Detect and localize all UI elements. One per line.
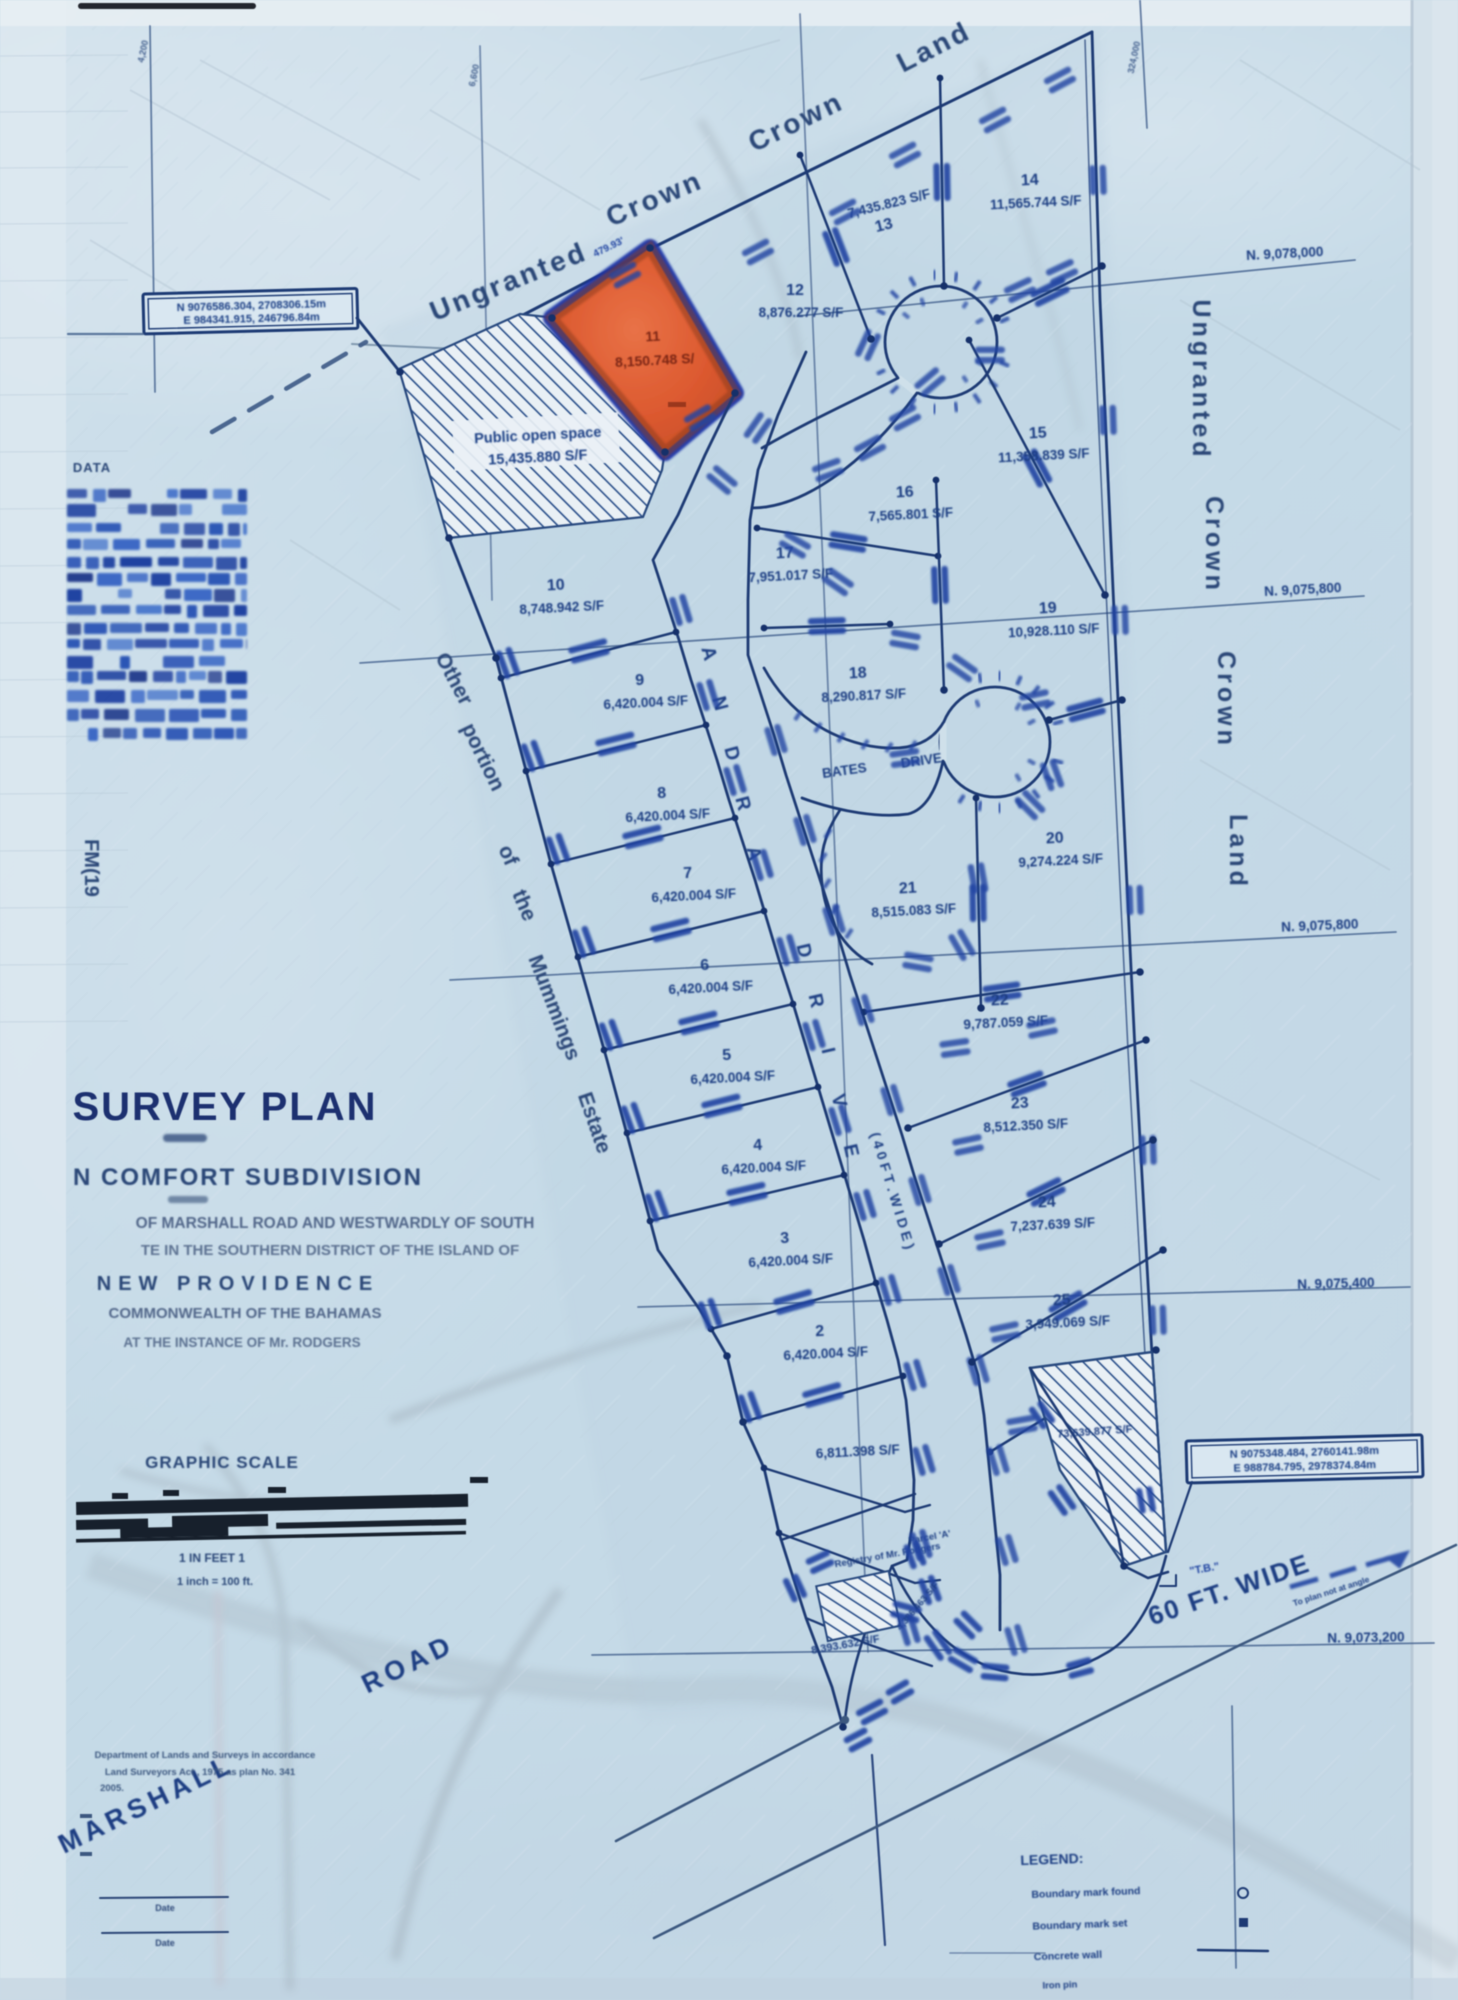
svg-text:DATA: DATA [73,460,111,475]
svg-text:6: 6 [700,957,710,974]
svg-text:5: 5 [722,1047,732,1064]
svg-text:NEW PROVIDENCE: NEW PROVIDENCE [97,1273,379,1295]
svg-text:3: 3 [780,1230,790,1247]
svg-text:COMMONWEALTH OF THE BAHAMAS: COMMONWEALTH OF THE BAHAMAS [108,1305,381,1322]
svg-text:25: 25 [1052,1292,1071,1310]
svg-text:21: 21 [898,880,917,898]
svg-text:Crown: Crown [1212,651,1240,749]
svg-text:FM(19: FM(19 [80,839,102,897]
svg-text:GRAPHIC SCALE: GRAPHIC SCALE [145,1453,299,1472]
svg-text:Crown: Crown [1200,496,1228,594]
svg-text:N COMFORT SUBDIVISION: N COMFORT SUBDIVISION [73,1164,423,1191]
svg-text:10: 10 [546,577,565,595]
svg-text:11: 11 [645,328,661,345]
svg-text:15: 15 [1028,425,1047,443]
svg-text:Land: Land [1224,814,1252,890]
svg-text:Date: Date [155,1938,175,1948]
svg-text:2005.: 2005. [100,1783,124,1794]
svg-text:19: 19 [1038,600,1057,618]
svg-text:12: 12 [786,282,804,299]
svg-text:2: 2 [815,1323,825,1340]
svg-text:Department of Lands and Survey: Department of Lands and Surveys in accor… [95,1750,316,1761]
svg-text:Iron pin: Iron pin [1042,1979,1077,1991]
svg-text:AT THE INSTANCE OF Mr. RODGERS: AT THE INSTANCE OF Mr. RODGERS [123,1335,360,1350]
svg-text:Land Surveyors Act , 1975 as p: Land Surveyors Act , 1975 as plan No. 34… [105,1767,296,1778]
svg-text:22: 22 [990,992,1009,1010]
svg-text:SURVEY PLAN: SURVEY PLAN [72,1085,377,1129]
svg-text:8: 8 [657,785,667,802]
svg-text:18: 18 [848,665,867,683]
svg-text:OF MARSHALL ROAD AND WESTWARDL: OF MARSHALL ROAD AND WESTWARDLY OF SOUTH [136,1215,535,1232]
svg-text:14: 14 [1020,172,1039,190]
svg-text:TE IN THE SOUTHERN DISTRICT OF: TE IN THE SOUTHERN DISTRICT OF THE ISLAN… [141,1242,519,1259]
svg-text:Date: Date [155,1903,175,1913]
svg-text:24: 24 [1037,1194,1056,1212]
svg-text:1 IN FEET 1: 1 IN FEET 1 [179,1551,245,1565]
svg-text:Ungranted: Ungranted [1187,300,1215,461]
svg-text:7: 7 [683,865,693,882]
svg-text:1 inch = 100 ft.: 1 inch = 100 ft. [177,1576,253,1588]
svg-text:8,876.277 S/F: 8,876.277 S/F [759,305,844,320]
svg-text:LEGEND:: LEGEND: [1020,1850,1084,1868]
svg-text:23: 23 [1010,1095,1029,1113]
svg-text:Concrete wall: Concrete wall [1034,1949,1103,1963]
svg-text:N. 9,073,200: N. 9,073,200 [1327,1629,1405,1645]
svg-text:16: 16 [895,484,914,502]
svg-text:20: 20 [1045,830,1064,848]
svg-text:9: 9 [635,672,645,689]
svg-text:N. 9,075,400: N. 9,075,400 [1297,1275,1375,1292]
svg-text:4: 4 [753,1137,763,1154]
